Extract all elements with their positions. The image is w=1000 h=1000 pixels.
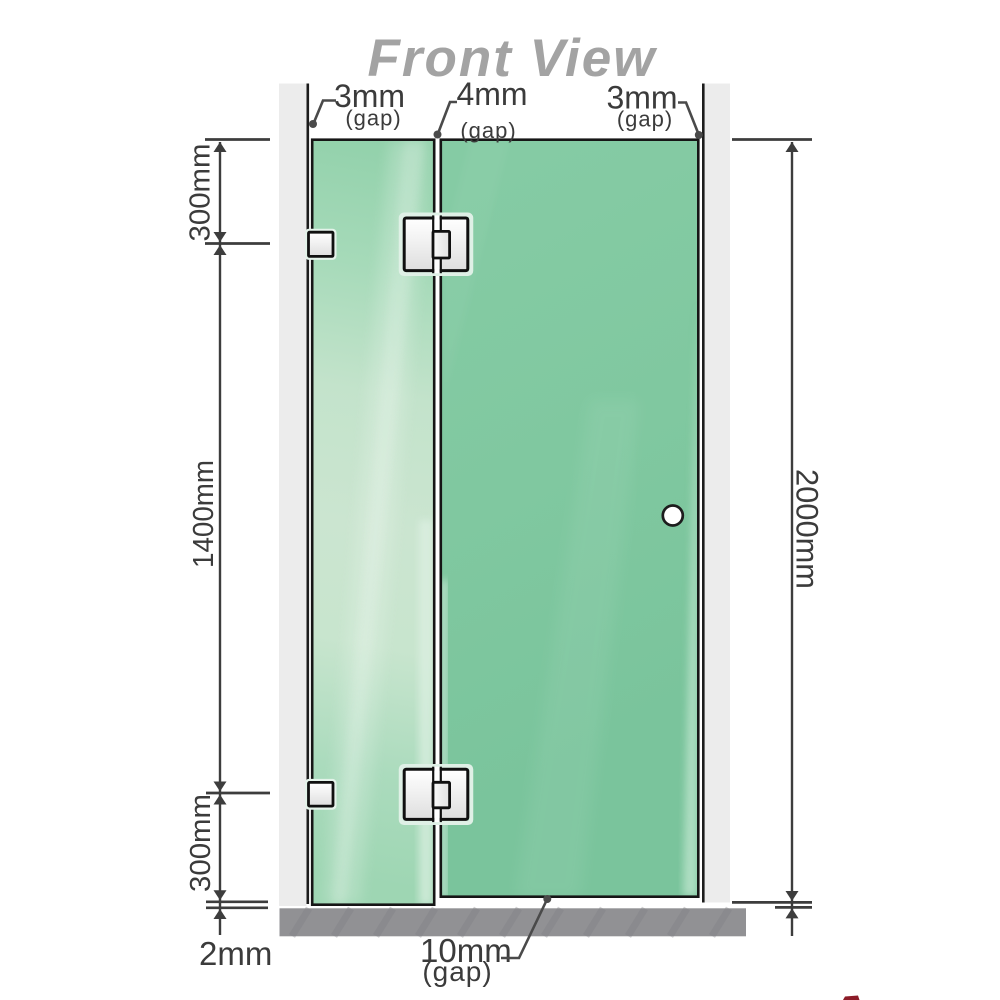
svg-text:(gap): (gap) xyxy=(617,107,673,132)
svg-text:300mm: 300mm xyxy=(185,794,217,892)
svg-text:300mm: 300mm xyxy=(185,144,217,242)
svg-text:(gap): (gap) xyxy=(422,956,492,987)
svg-text:2mm: 2mm xyxy=(199,935,272,972)
svg-text:1400mm: 1400mm xyxy=(188,460,220,568)
svg-text:(gap): (gap) xyxy=(345,106,401,131)
svg-text:(gap): (gap) xyxy=(460,118,516,143)
svg-text:2000mm: 2000mm xyxy=(790,469,826,589)
svg-text:4mm: 4mm xyxy=(456,76,527,112)
